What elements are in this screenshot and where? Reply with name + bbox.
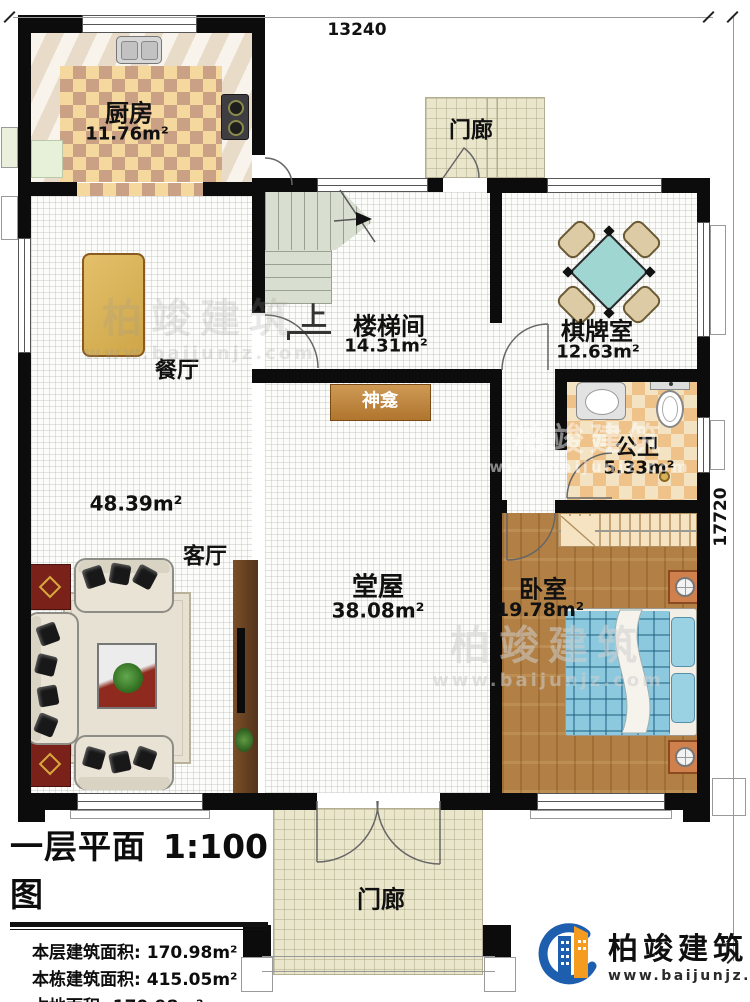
brand-url: www.baijunjz.com	[608, 968, 750, 984]
bath-area: 5.33m²	[603, 460, 674, 479]
dimension-top-value: 13240	[327, 22, 386, 40]
door-arc	[377, 801, 440, 864]
stat-row: 本层建筑面积: 170.98m²	[32, 940, 268, 967]
porch-step-line	[262, 956, 495, 957]
porch-step-line	[262, 971, 495, 972]
legend-block: 一层平面图 1:100 本层建筑面积: 170.98m² 本栋建筑面积: 415…	[10, 820, 268, 1002]
stat-label: 本栋建筑面积:	[32, 970, 141, 990]
stat-row: 占地面积: 170.98m²	[32, 994, 268, 1002]
stat-label: 占地面积:	[32, 997, 107, 1002]
door-arc	[317, 801, 378, 862]
plan-scale: 1:100	[163, 827, 268, 866]
brand-logo: 柏竣建筑 www.baijunjz.com	[538, 912, 750, 996]
door-arc	[443, 148, 479, 178]
living-dining-area: 48.39m²	[90, 494, 183, 515]
logo-building-orange	[574, 926, 588, 978]
porch-bottom-label: 门廊	[357, 887, 405, 912]
bed-blanket	[615, 610, 650, 733]
brand-logo-icon	[538, 916, 600, 992]
title-rule	[10, 922, 268, 927]
door-arc	[507, 513, 555, 560]
stair-arrow-head	[356, 212, 372, 226]
brand-name: 柏竣建筑	[608, 924, 750, 968]
logo-building-blue	[558, 936, 571, 978]
stat-value: 170.98m²	[113, 997, 204, 1002]
hall-area: 38.08m²	[332, 601, 425, 622]
stat-row: 本栋建筑面积: 415.05m²	[32, 967, 268, 994]
floor-plan: 厨房 11.76m² 门廊 棋牌室 12.63m² 楼梯间 14.31m² 上 …	[0, 0, 750, 1002]
dimension-line-top	[13, 17, 713, 18]
stat-label: 本层建筑面积:	[32, 943, 141, 963]
porch-top-label: 门廊	[449, 119, 493, 142]
stair-up-label: 上	[301, 304, 327, 331]
shrine-label: 神龛	[362, 393, 398, 412]
dimension-line-right	[733, 17, 734, 961]
dining-label: 餐厅	[155, 359, 199, 382]
bedroom-area: 19.78m²	[496, 601, 584, 621]
door-arc	[265, 158, 292, 185]
dimension-right-value: 17720	[713, 487, 731, 546]
chess-room-area: 12.63m²	[556, 344, 640, 363]
stat-value: 170.98m²	[147, 943, 238, 963]
bath-label: 公卫	[615, 436, 659, 459]
kitchen-area: 11.76m²	[85, 126, 169, 145]
plan-title: 一层平面图	[10, 820, 151, 916]
stat-value: 415.05m²	[147, 970, 238, 990]
door-arc	[502, 324, 548, 370]
stair-direction-line	[334, 219, 358, 221]
stairwell-area: 14.31m²	[344, 338, 428, 357]
title-rule-thin	[10, 929, 268, 930]
living-label: 客厅	[183, 545, 227, 568]
